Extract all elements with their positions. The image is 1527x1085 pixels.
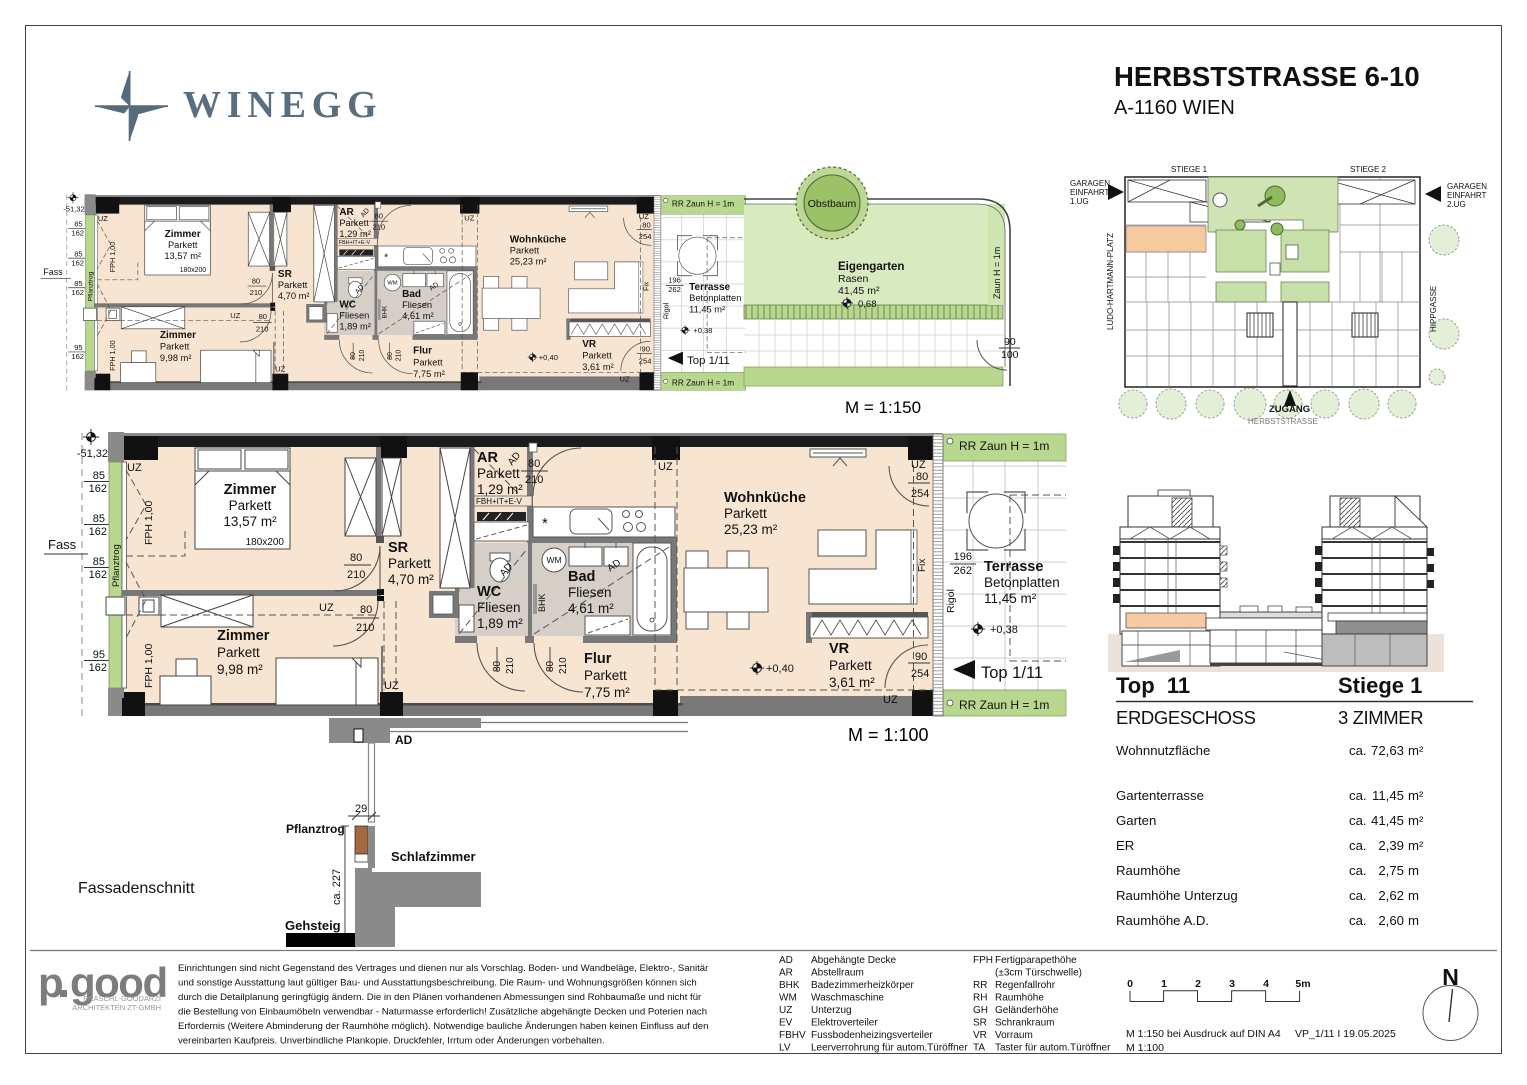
svg-text:85: 85 [93,556,105,568]
svg-text:Parkett: Parkett [724,506,767,521]
svg-text:210: 210 [347,569,365,581]
svg-text:WM: WM [779,993,797,1004]
svg-text:EINFAHRT: EINFAHRT [1070,188,1110,197]
svg-text:Fertigparapethöhe: Fertigparapethöhe [995,955,1077,966]
svg-text:Taster für autom.Türöffner: Taster für autom.Türöffner [995,1043,1111,1054]
svg-text:AD: AD [395,733,413,747]
svg-text:Top 1/11: Top 1/11 [981,664,1043,682]
svg-text:Schrankraum: Schrankraum [995,1018,1054,1029]
svg-text:GARAGEN: GARAGEN [1447,182,1487,191]
svg-text:162: 162 [89,483,107,495]
svg-text:Parkett: Parkett [829,658,872,673]
svg-text:2,39: 2,39 [1378,838,1404,853]
svg-text:m²: m² [1408,743,1424,758]
svg-text:1: 1 [1161,978,1167,990]
svg-text:1.UG: 1.UG [1070,197,1089,206]
svg-text:2.UG: 2.UG [1447,200,1466,209]
svg-text:die Bestellung von Einbaumöbel: die Bestellung von Einbaumöbeln verwendb… [178,1007,707,1018]
svg-text:Rigol: Rigol [945,589,957,613]
svg-text:3,61 m²: 3,61 m² [829,675,875,690]
svg-text:Fassadenschnitt: Fassadenschnitt [78,880,195,897]
svg-text:162: 162 [89,526,107,538]
svg-text:RR Zaun H = 1m: RR Zaun H = 1m [959,439,1049,453]
svg-text:VP_1/11 I 19.05.2025: VP_1/11 I 19.05.2025 [1295,1028,1396,1040]
svg-text:262: 262 [954,565,972,577]
svg-text:Wohnnutzfläche: Wohnnutzfläche [1116,743,1210,758]
svg-text:Fussbodenheizingsverteiler: Fussbodenheizingsverteiler [811,1030,933,1041]
svg-text:AD: AD [779,955,793,966]
svg-text:AR: AR [477,450,498,466]
svg-text:UZ: UZ [883,694,898,706]
svg-text:BHK: BHK [537,593,547,612]
svg-text:85: 85 [93,513,105,525]
svg-text:durch die Detailplanung gering: durch die Detailplanung geringfügig ände… [178,992,702,1003]
svg-text:Parkett: Parkett [217,645,260,660]
svg-text:LV: LV [779,1043,791,1054]
svg-text:ca.: ca. [1349,838,1367,853]
svg-text:Vorraum: Vorraum [995,1030,1033,1041]
svg-text:FPH 1,00: FPH 1,00 [143,500,155,545]
svg-text:-51,32: -51,32 [77,448,108,460]
svg-text:95: 95 [93,649,105,661]
svg-text:25,23 m²: 25,23 m² [724,522,778,537]
svg-text:0: 0 [1127,978,1133,990]
svg-text:29: 29 [355,803,367,815]
svg-text:Stiege 1: Stiege 1 [1338,673,1422,698]
svg-text:196: 196 [954,551,972,563]
svg-text:Terrasse: Terrasse [984,559,1043,575]
svg-text:vereinbarten Kaufpreis. Unverb: vereinbarten Kaufpreis. Unverbindliche P… [178,1036,605,1047]
svg-text:WM: WM [546,555,561,565]
svg-text:m: m [1408,863,1419,878]
svg-text:4,61 m²: 4,61 m² [568,601,614,616]
svg-text:ca.: ca. [1349,863,1367,878]
svg-text:4,70 m²: 4,70 m² [388,572,434,587]
svg-text:90: 90 [915,651,927,663]
svg-text:Garten: Garten [1116,813,1156,828]
svg-text:Abgehängte Decke: Abgehängte Decke [811,955,897,966]
svg-text:m²: m² [1408,838,1424,853]
svg-text:13,57 m²: 13,57 m² [223,514,277,529]
svg-text:7,75 m²: 7,75 m² [584,685,630,700]
svg-text:ca. 227: ca. 227 [331,869,343,905]
svg-text:EV: EV [779,1018,793,1029]
svg-text:100: 100 [1001,349,1019,361]
svg-text:ZUGANG: ZUGANG [1269,404,1310,415]
svg-text:VR: VR [973,1030,987,1041]
svg-text:FBHV: FBHV [779,1030,806,1041]
svg-text:Parkett: Parkett [229,498,272,513]
svg-text:ca.: ca. [1349,788,1367,803]
svg-text:Badezimmerheizkörper: Badezimmerheizkörper [811,980,914,991]
svg-text:m²: m² [1408,788,1424,803]
svg-text:Obstbaum: Obstbaum [808,198,857,210]
svg-text:Raumhöhe Unterzug: Raumhöhe Unterzug [1116,888,1238,903]
svg-text:STIEGE 2: STIEGE 2 [1350,165,1387,174]
svg-text:41,45: 41,45 [1371,813,1404,828]
svg-text:Leerverrohrung für autom.Türöf: Leerverrohrung für autom.Türöffner [811,1043,968,1054]
svg-text:1,29 m²: 1,29 m² [477,482,523,497]
svg-text:AR: AR [779,968,793,979]
svg-text:Bad: Bad [568,569,595,585]
svg-text:Wohnküche: Wohnküche [724,490,806,506]
svg-text:BHK: BHK [779,980,800,991]
svg-text:p: p [38,959,62,1006]
svg-text:90: 90 [1004,336,1016,348]
svg-text:72,63: 72,63 [1371,743,1404,758]
svg-text:80: 80 [350,552,362,564]
svg-text:+0,38: +0,38 [990,624,1018,636]
svg-text:11,45 m²: 11,45 m² [984,591,1037,606]
svg-text:Zaun H = 1m: Zaun H = 1m [992,247,1002,299]
svg-text:Geländerhöhe: Geländerhöhe [995,1005,1059,1016]
svg-text:und sonstige Ausstattung laut: und sonstige Ausstattung laut gültiger B… [178,978,697,989]
svg-text:41,45 m²: 41,45 m² [838,285,880,297]
svg-text:80: 80 [545,660,556,672]
svg-text:Raumhöhe: Raumhöhe [1116,863,1181,878]
svg-text:2,75: 2,75 [1378,863,1404,878]
svg-text:0,68: 0,68 [858,299,877,310]
svg-text:ER: ER [1116,838,1134,853]
svg-text:TA: TA [973,1043,985,1054]
svg-text:HERBSTSTRASSE 6-10: HERBSTSTRASSE 6-10 [1114,61,1420,92]
svg-text:Elektroverteiler: Elektroverteiler [811,1018,878,1029]
svg-text:Parkett: Parkett [388,556,431,571]
svg-text:GH: GH [973,1005,988,1016]
svg-text:85: 85 [93,470,105,482]
svg-text:3 ZIMMER: 3 ZIMMER [1338,707,1423,728]
svg-text:WC: WC [477,584,502,600]
svg-text:5m: 5m [1295,978,1310,990]
svg-text:RH: RH [973,993,987,1004]
svg-text:Waschmaschine: Waschmaschine [811,993,884,1004]
svg-text:N: N [1442,964,1459,990]
svg-text:GARAGEN: GARAGEN [1070,179,1110,188]
svg-text:m: m [1408,913,1419,928]
svg-text:RR: RR [973,980,987,991]
svg-text:RR Zaun H = 1m: RR Zaun H = 1m [959,698,1049,712]
svg-text:Unterzug: Unterzug [811,1005,852,1016]
svg-text:Zimmer: Zimmer [217,628,270,644]
svg-text:UZ: UZ [658,461,673,473]
svg-text:M = 1:150: M = 1:150 [845,398,921,417]
svg-text:Fliesen: Fliesen [477,600,521,615]
svg-text:4: 4 [1263,978,1269,990]
svg-text:ERDGESCHOSS: ERDGESCHOSS [1116,707,1256,728]
svg-text:ca.: ca. [1349,888,1367,903]
svg-text:ARCHITEKTEN ZT-GMBH: ARCHITEKTEN ZT-GMBH [72,1003,161,1012]
svg-text:VR: VR [829,641,850,657]
svg-text:FPH: FPH [973,955,993,966]
svg-text:FBH+IT+E-V: FBH+IT+E-V [476,497,522,506]
svg-text:210: 210 [505,657,516,674]
svg-text:2,60: 2,60 [1378,913,1404,928]
svg-text:(±3cm Türschwelle): (±3cm Türschwelle) [995,968,1082,979]
svg-text:UZ: UZ [127,462,142,474]
svg-text:Top 11: Top 11 [1116,673,1190,698]
svg-text:M 1:150 bei Ausdruck auf DIN A: M 1:150 bei Ausdruck auf DIN A4 [1126,1028,1281,1040]
svg-text:M 1:100: M 1:100 [1126,1042,1164,1054]
svg-text:Parkett: Parkett [584,668,627,683]
svg-text:SR: SR [388,540,409,556]
svg-text:*: * [542,515,548,532]
svg-text:HERBSTSTRASSE: HERBSTSTRASSE [1248,417,1318,426]
svg-text:2,62: 2,62 [1378,888,1404,903]
svg-text:A-1160 WIEN: A-1160 WIEN [1114,97,1235,119]
svg-text:80: 80 [916,471,928,483]
svg-text:Erfordernis (Weitere Abminderu: Erfordernis (Weitere Abminderung der Rau… [178,1021,708,1032]
svg-text:210: 210 [525,474,543,486]
svg-text:Regenfallrohr: Regenfallrohr [995,980,1056,991]
svg-text:9,98 m²: 9,98 m² [217,662,263,677]
svg-text:m: m [1408,888,1419,903]
svg-text:UZ: UZ [911,459,926,471]
svg-text:Fliesen: Fliesen [568,585,612,600]
svg-text:11,45: 11,45 [1372,788,1404,803]
svg-text:HIPPGASSE: HIPPGASSE [1429,286,1438,332]
svg-text:Eigengarten: Eigengarten [838,261,904,273]
svg-text:ca.: ca. [1349,913,1367,928]
svg-text:210: 210 [558,657,569,674]
svg-text:3: 3 [1229,978,1235,990]
svg-text:2: 2 [1195,978,1201,990]
svg-text:UZ: UZ [384,680,399,692]
svg-text:Raumhöhe: Raumhöhe [995,993,1044,1004]
svg-text:+0,40: +0,40 [766,663,794,675]
svg-text:UZ: UZ [779,1005,792,1016]
svg-text:Flur: Flur [584,651,612,667]
svg-text:LUDO-HARTMANN-PLATZ: LUDO-HARTMANN-PLATZ [1106,233,1115,330]
svg-text:Fix: Fix [917,559,928,572]
svg-text:FPH 1,00: FPH 1,00 [143,643,155,688]
svg-text:Pflanztrog: Pflanztrog [111,544,122,587]
svg-text:Schlafzimmer: Schlafzimmer [391,849,476,864]
svg-text:254: 254 [911,668,929,680]
svg-text:80: 80 [492,660,503,672]
svg-text:STIEGE 1: STIEGE 1 [1171,165,1208,174]
svg-text:162: 162 [89,569,107,581]
svg-text:WINEGG: WINEGG [183,84,383,126]
svg-text:Fass: Fass [48,537,77,552]
svg-text:PRASCHL-GOODARZI: PRASCHL-GOODARZI [83,994,161,1003]
svg-text:ca.: ca. [1349,813,1367,828]
svg-text:254: 254 [911,488,929,500]
svg-text:1,89 m²: 1,89 m² [477,616,523,631]
svg-text:Abstellraum: Abstellraum [811,968,864,979]
svg-text:Gartenterrasse: Gartenterrasse [1116,788,1204,803]
svg-text:Zimmer: Zimmer [224,482,277,498]
svg-text:Pflanztrog: Pflanztrog [286,822,345,836]
svg-text:EINFAHRT: EINFAHRT [1447,191,1487,200]
svg-text:80: 80 [528,458,540,470]
svg-text:80: 80 [360,604,372,616]
svg-text:M = 1:100: M = 1:100 [848,725,929,745]
svg-text:Einrichtungen sind nicht Gegen: Einrichtungen sind nicht Gegenstand des … [178,963,709,974]
svg-text:m²: m² [1408,813,1424,828]
svg-text:Betonplatten: Betonplatten [984,575,1060,590]
svg-text:Gehsteig: Gehsteig [285,918,341,933]
svg-text:UZ: UZ [319,602,334,614]
svg-text:Rasen: Rasen [838,273,869,285]
svg-text:Raumhöhe A.D.: Raumhöhe A.D. [1116,913,1209,928]
svg-text:180x200: 180x200 [246,537,285,548]
svg-text:SR: SR [973,1018,987,1029]
svg-text:ca.: ca. [1349,743,1367,758]
svg-text:210: 210 [356,622,374,634]
svg-text:162: 162 [89,662,107,674]
